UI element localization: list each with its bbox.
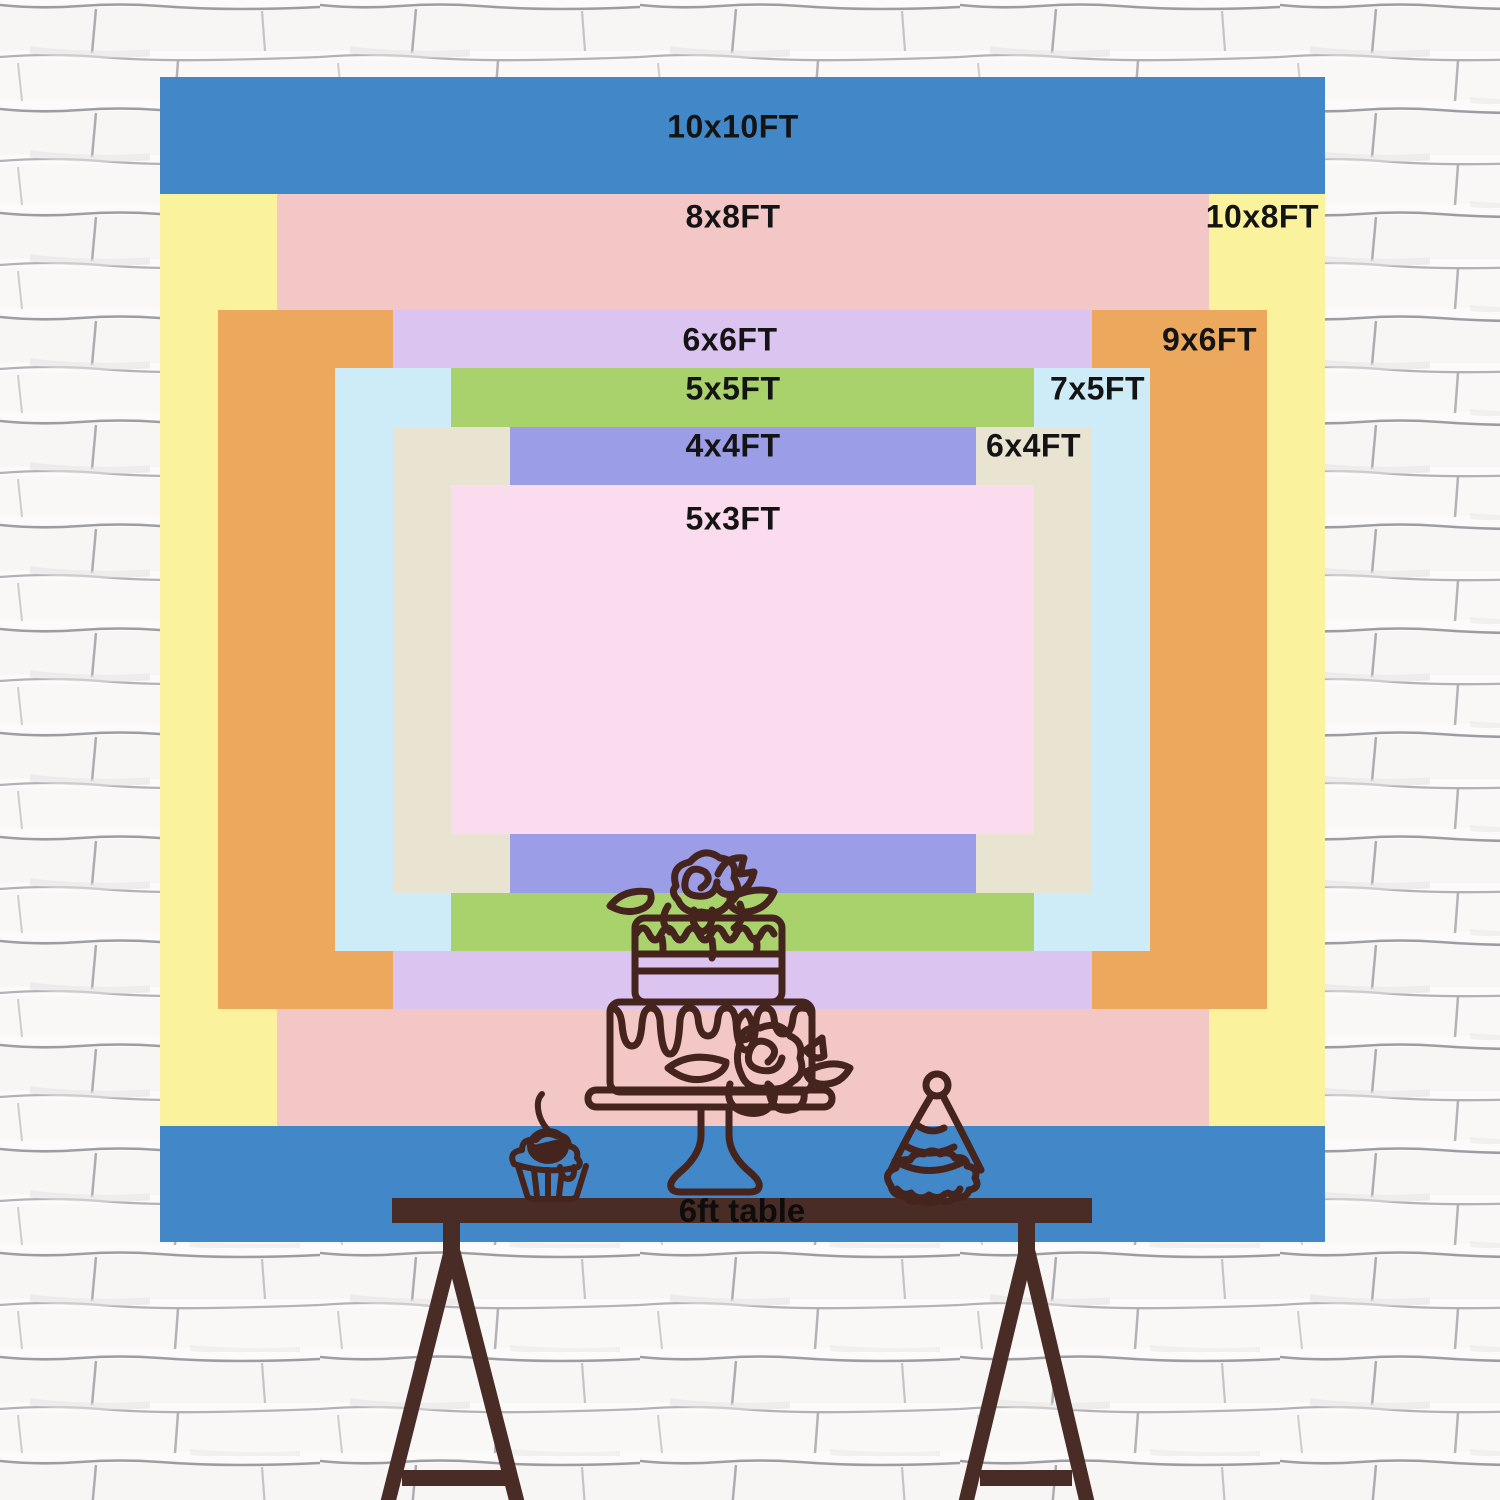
size-label-8x8ft: 8x8FT [686, 199, 781, 236]
size-label-5x5ft: 5x5FT [686, 371, 781, 408]
size-label-4x4ft: 4x4FT [686, 428, 781, 465]
size-label-6x4ft: 6x4FT [986, 428, 1081, 465]
size-chart: 10x10FT10x8FT8x8FT9x6FT6x6FT7x5FT5x5FT6x… [0, 0, 1500, 1500]
table-length-label: 6ft table [679, 1192, 806, 1230]
size-label-9x6ft: 9x6FT [1162, 322, 1257, 359]
size-label-7x5ft: 7x5FT [1050, 371, 1145, 408]
size-label-10x10ft: 10x10FT [667, 109, 799, 146]
size-label-6x6ft: 6x6FT [683, 322, 778, 359]
size-label-10x8ft: 10x8FT [1206, 199, 1319, 236]
screenshot-root: { "title": "Backdrop size comparison cha… [0, 0, 1500, 1500]
size-label-5x3ft: 5x3FT [686, 501, 781, 538]
